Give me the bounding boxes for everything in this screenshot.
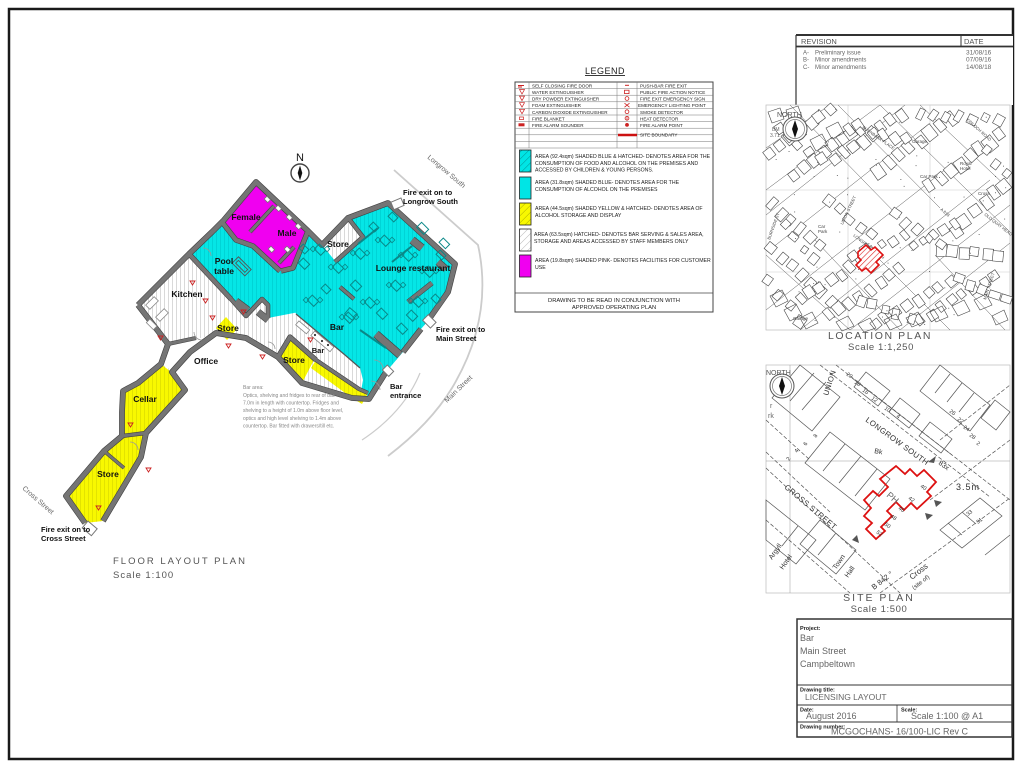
svg-text:AREA (63.5sqm) HATCHED- DENOTE: AREA (63.5sqm) HATCHED- DENOTES BAR SERV… bbox=[534, 232, 704, 238]
svg-text:Fire exit on to: Fire exit on to bbox=[436, 325, 486, 334]
svg-text:PUSH-BAR FIRE EXIT: PUSH-BAR FIRE EXIT bbox=[640, 83, 687, 88]
svg-text:ACCESSED BY CHILDREN & YOUNG P: ACCESSED BY CHILDREN & YOUNG PERSONS. bbox=[535, 168, 653, 174]
svg-text:Store: Store bbox=[327, 239, 349, 249]
svg-text:HEAT DETECTOR: HEAT DETECTOR bbox=[640, 116, 679, 121]
svg-text:EMERGENCY LIGHTING POINT: EMERGENCY LIGHTING POINT bbox=[638, 103, 706, 108]
svg-text:rk: rk bbox=[768, 413, 774, 420]
svg-text:Scale 1:100 @ A1: Scale 1:100 @ A1 bbox=[911, 711, 983, 721]
svg-text:Scale 1:100: Scale 1:100 bbox=[113, 570, 174, 581]
svg-text:Preliminary issue: Preliminary issue bbox=[815, 51, 861, 57]
svg-text:Store: Store bbox=[283, 355, 305, 365]
svg-text:LEGEND: LEGEND bbox=[585, 66, 625, 76]
svg-text:SELF CLOSING FIRE DOOR: SELF CLOSING FIRE DOOR bbox=[532, 83, 593, 88]
svg-text:3.71: 3.71 bbox=[770, 133, 780, 139]
svg-text:Bar: Bar bbox=[800, 633, 814, 643]
svg-text:Fire exit on to: Fire exit on to bbox=[41, 525, 91, 534]
svg-text:FLOOR LAYOUT PLAN: FLOOR LAYOUT PLAN bbox=[113, 556, 247, 567]
svg-text:Scale 1:500: Scale 1:500 bbox=[851, 604, 908, 615]
svg-text:MCGOCHANS- 16/100-LIC Rev C: MCGOCHANS- 16/100-LIC Rev C bbox=[831, 727, 969, 737]
svg-text:B-: B- bbox=[803, 58, 809, 64]
svg-text:FIRE ALARM POINT: FIRE ALARM POINT bbox=[640, 123, 683, 128]
svg-text:Project:: Project: bbox=[800, 626, 821, 632]
svg-text:Lounge restaurant: Lounge restaurant bbox=[376, 263, 451, 273]
svg-text:USE: USE bbox=[535, 265, 546, 271]
svg-text:Kitchen: Kitchen bbox=[171, 289, 202, 299]
svg-text:AREA (31.8sqm) SHADED BLUE- DE: AREA (31.8sqm) SHADED BLUE- DENOTES AREA… bbox=[535, 180, 680, 186]
svg-text:Bar: Bar bbox=[312, 346, 325, 355]
svg-text:DATE: DATE bbox=[964, 37, 983, 46]
svg-text:Minor amendments: Minor amendments bbox=[815, 65, 866, 71]
svg-text:Fire exit on to: Fire exit on to bbox=[403, 188, 453, 197]
svg-text:STORAGE AND AREAS ACCESSED BY: STORAGE AND AREAS ACCESSED BY STAFF MEMB… bbox=[534, 239, 689, 245]
svg-text:FOAM EXTINGUISHER: FOAM EXTINGUISHER bbox=[532, 103, 582, 108]
svg-text:countertop. Bar fitted with dr: countertop. Bar fitted with drawers/till… bbox=[243, 423, 334, 429]
svg-text:Minor amendments: Minor amendments bbox=[815, 58, 866, 64]
svg-text:07/09/16: 07/09/16 bbox=[966, 57, 992, 64]
svg-text:FIRE EXIT EMERGENCY SIGN: FIRE EXIT EMERGENCY SIGN bbox=[640, 97, 705, 102]
svg-text:SMOKE DETECTOR: SMOKE DETECTOR bbox=[640, 110, 684, 115]
svg-text:NORTH: NORTH bbox=[777, 112, 802, 119]
svg-text:Cellar: Cellar bbox=[133, 394, 157, 404]
svg-text:Park: Park bbox=[818, 229, 828, 234]
svg-text:3.5m: 3.5m bbox=[956, 482, 980, 492]
svg-text:Campbeltown: Campbeltown bbox=[800, 659, 855, 669]
svg-text:APPROVED OPERATING PLAN: APPROVED OPERATING PLAN bbox=[572, 305, 656, 311]
svg-text:LOCATION PLAN: LOCATION PLAN bbox=[828, 330, 932, 342]
svg-text:REVISION: REVISION bbox=[801, 37, 837, 46]
svg-text:Longrow South: Longrow South bbox=[403, 197, 458, 206]
svg-text:Cross: Cross bbox=[978, 191, 991, 196]
svg-text:31/08/16: 31/08/16 bbox=[966, 50, 992, 57]
svg-text:PUBLIC FIRE ACTION NOTICE: PUBLIC FIRE ACTION NOTICE bbox=[640, 90, 705, 95]
svg-text:optics and high level shelving: optics and high level shelving to 1.4m a… bbox=[243, 416, 341, 422]
svg-text:CONSUMPTION OF FOOD AND ALCOHO: CONSUMPTION OF FOOD AND ALCOHOL ON THE P… bbox=[535, 161, 698, 167]
svg-text:entrance: entrance bbox=[390, 391, 421, 400]
svg-text:Bar: Bar bbox=[390, 382, 403, 391]
svg-text:FIRE ALARM SOUNDER: FIRE ALARM SOUNDER bbox=[532, 123, 584, 128]
svg-text:Garage: Garage bbox=[793, 316, 809, 321]
svg-text:Car Park: Car Park bbox=[920, 174, 939, 179]
svg-text:SITE PLAN: SITE PLAN bbox=[843, 592, 915, 604]
svg-text:August 2016: August 2016 bbox=[806, 711, 857, 721]
svg-text:Store: Store bbox=[217, 323, 239, 333]
svg-text:7.0m in length with countertop: 7.0m in length with countertop. Fridges … bbox=[243, 401, 339, 407]
svg-text:NORTH: NORTH bbox=[766, 370, 791, 377]
svg-text:C-: C- bbox=[803, 65, 809, 71]
svg-text:A-: A- bbox=[803, 51, 809, 57]
svg-text:Female: Female bbox=[231, 212, 261, 222]
svg-text:Office: Office bbox=[194, 356, 218, 366]
svg-text:Store: Store bbox=[97, 469, 119, 479]
svg-text:WATER EXTINGUISHER: WATER EXTINGUISHER bbox=[532, 90, 584, 95]
svg-text:N: N bbox=[296, 152, 304, 164]
svg-text:SITE BOUNDARY: SITE BOUNDARY bbox=[640, 133, 677, 138]
svg-text:Hotel: Hotel bbox=[960, 166, 971, 171]
svg-text:ALCOHOL STORAGE AND DISPLAY: ALCOHOL STORAGE AND DISPLAY bbox=[535, 213, 622, 219]
svg-text:CARBON DIOXIDE EXTINGUISHER: CARBON DIOXIDE EXTINGUISHER bbox=[532, 110, 608, 115]
svg-text:Cross Street: Cross Street bbox=[41, 534, 86, 543]
svg-text:Male: Male bbox=[278, 228, 297, 238]
svg-text:AREA (44.5sqm) SHADED YELLOW &: AREA (44.5sqm) SHADED YELLOW & HATCHED- … bbox=[535, 206, 703, 212]
svg-text:Pool: Pool bbox=[215, 256, 233, 266]
svg-text:Bar: Bar bbox=[330, 322, 345, 332]
svg-text:DRY POWDER EXTINGUISHER: DRY POWDER EXTINGUISHER bbox=[532, 97, 600, 102]
svg-text:Scale 1:1,250: Scale 1:1,250 bbox=[848, 342, 914, 353]
svg-text:14/08/18: 14/08/18 bbox=[966, 64, 992, 71]
svg-text:FIRE BLANKET: FIRE BLANKET bbox=[532, 116, 565, 121]
svg-text:Main Street: Main Street bbox=[800, 646, 847, 656]
svg-text:Garage: Garage bbox=[912, 139, 928, 144]
svg-text:DRAWING TO BE READ IN CONJUNCT: DRAWING TO BE READ IN CONJUNCTION WITH bbox=[548, 298, 680, 304]
svg-text:table: table bbox=[214, 266, 234, 276]
svg-text:LICENSING LAYOUT: LICENSING LAYOUT bbox=[805, 692, 887, 702]
svg-text:Bar area:: Bar area: bbox=[243, 385, 264, 391]
svg-text:CONSUMPTION OF ALCOHOL ON THE: CONSUMPTION OF ALCOHOL ON THE PREMISES bbox=[535, 187, 658, 193]
svg-text:shelving to a height of 1.0m a: shelving to a height of 1.0m above floor… bbox=[243, 408, 343, 414]
svg-text:AREA (92.4sqm) SHADED BLUE & H: AREA (92.4sqm) SHADED BLUE & HATCHED- DE… bbox=[535, 154, 711, 160]
svg-text:AREA (19.8sqm) SHADED PINK- DE: AREA (19.8sqm) SHADED PINK- DENOTES FACI… bbox=[535, 258, 711, 264]
svg-text:Main Street: Main Street bbox=[436, 334, 477, 343]
svg-text:Optics, shelving and fridges t: Optics, shelving and fridges to rear of … bbox=[243, 393, 336, 399]
